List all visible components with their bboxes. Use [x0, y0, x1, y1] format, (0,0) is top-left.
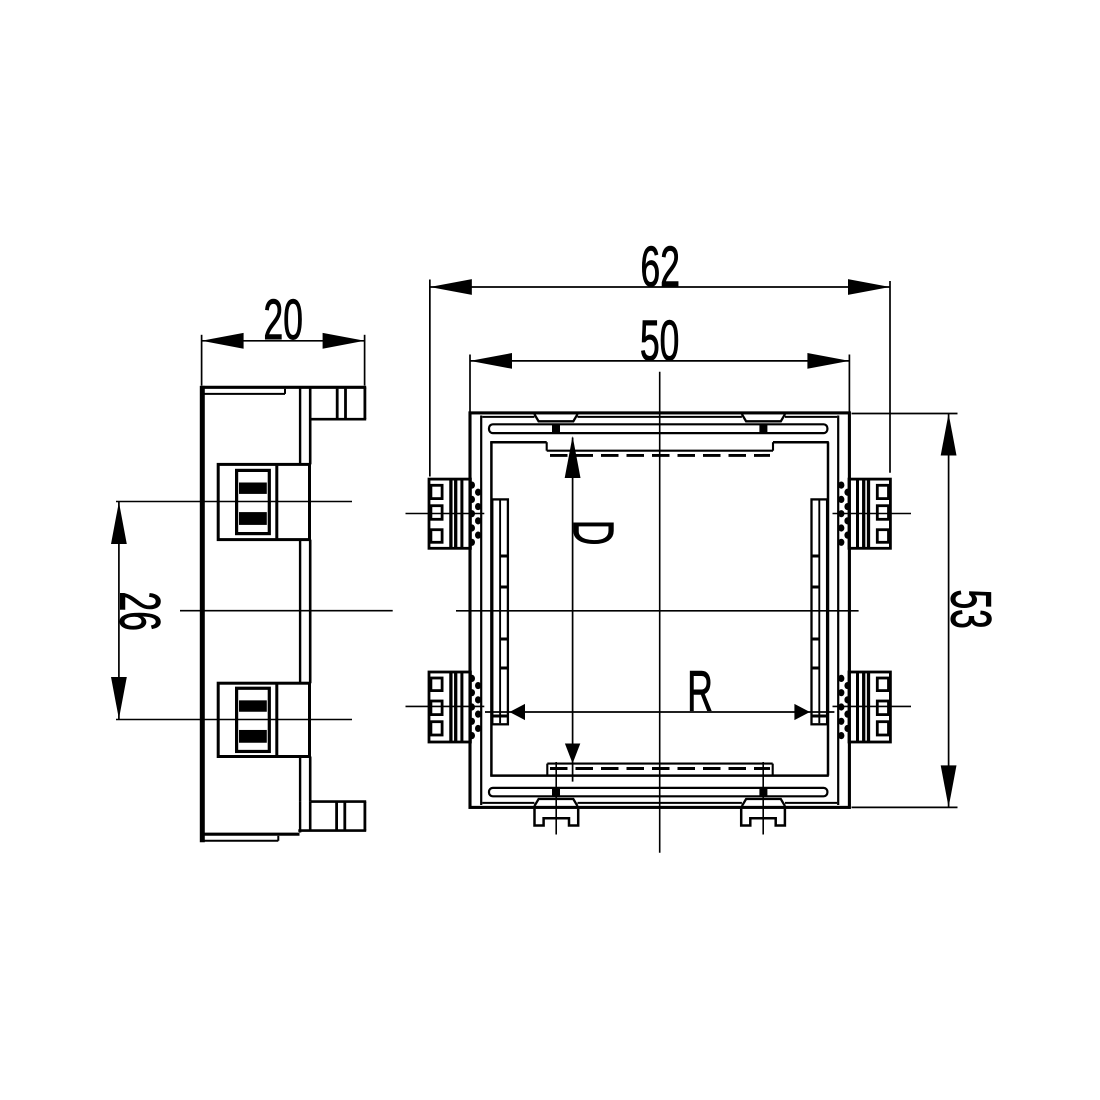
svg-text:50: 50 [640, 309, 679, 373]
svg-text:20: 20 [264, 288, 303, 352]
svg-text:D: D [561, 520, 625, 546]
svg-text:53: 53 [939, 589, 1003, 628]
svg-text:62: 62 [641, 235, 680, 299]
svg-text:26: 26 [108, 592, 172, 631]
svg-text:R: R [687, 659, 713, 723]
